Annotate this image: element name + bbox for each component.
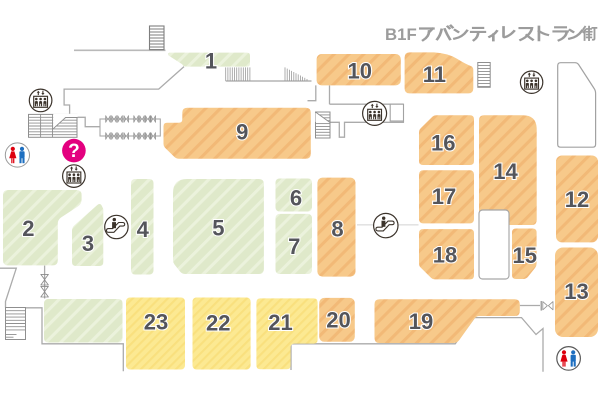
svg-text:11: 11 [423,62,446,87]
svg-text:22: 22 [206,311,230,336]
svg-text:9: 9 [236,120,248,145]
svg-text:21: 21 [268,310,292,335]
svg-text:2: 2 [22,216,34,241]
svg-text:10: 10 [348,59,372,84]
svg-text:12: 12 [565,187,589,212]
svg-text:5: 5 [212,216,224,241]
svg-text:13: 13 [564,279,588,304]
svg-text:1: 1 [205,48,217,73]
svg-text:23: 23 [144,310,168,335]
svg-text:18: 18 [433,243,457,268]
svg-text:B1F: B1F [385,25,417,44]
svg-text:3: 3 [82,231,94,256]
svg-text:7: 7 [288,234,300,259]
svg-text:16: 16 [431,131,455,156]
svg-text:14: 14 [493,159,518,184]
svg-text:6: 6 [290,185,302,210]
svg-text:17: 17 [432,184,456,209]
svg-text:?: ? [68,141,80,162]
svg-text:15: 15 [513,243,537,268]
svg-text:19: 19 [409,309,433,334]
svg-text:4: 4 [137,217,150,242]
svg-text:8: 8 [331,217,343,242]
svg-text:20: 20 [326,308,350,333]
